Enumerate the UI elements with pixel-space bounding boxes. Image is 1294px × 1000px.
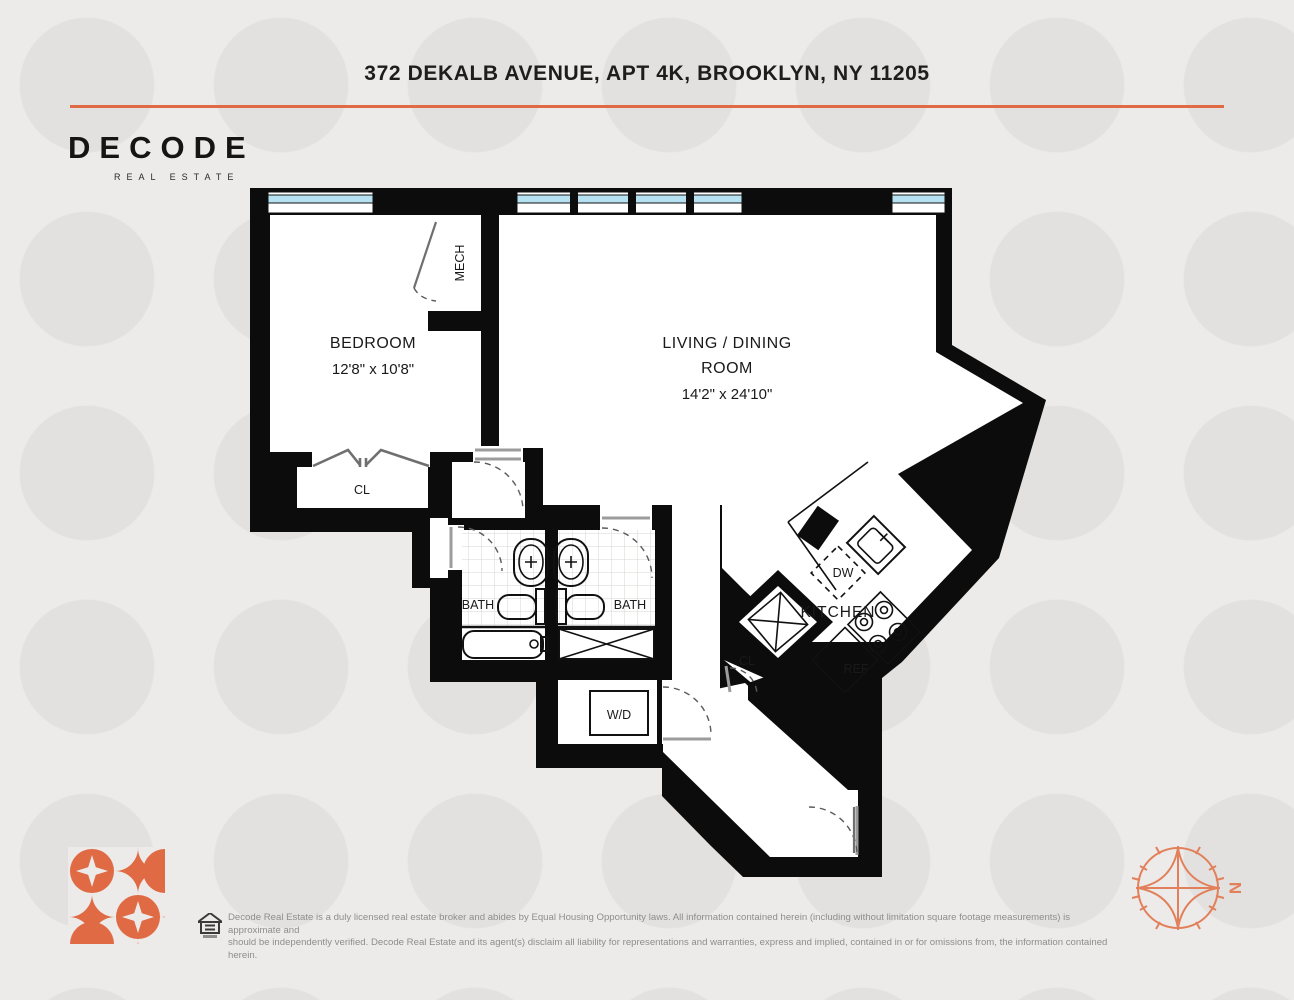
refrigerator-label: REF bbox=[844, 662, 869, 676]
mech-label: MECH bbox=[453, 245, 467, 282]
floorplan-svg: BEDROOM 12'8" x 10'8" LIVING / DINING RO… bbox=[0, 0, 1294, 1000]
wd-hall-floor bbox=[662, 680, 712, 744]
north-label: N bbox=[1226, 882, 1245, 894]
compass: N bbox=[1132, 846, 1245, 930]
hall-vestibule-floor bbox=[452, 462, 525, 518]
disclaimer-line2: should be independently verified. Decode… bbox=[228, 937, 1118, 962]
bedroom-label: BEDROOM bbox=[330, 335, 416, 352]
living-label-line1: LIVING / DINING bbox=[662, 335, 791, 352]
kitchen-label: KITCHEN bbox=[800, 604, 875, 621]
bedroom-closet-label: CL bbox=[354, 483, 370, 497]
floorplan-page: 372 DEKALB AVENUE, APT 4K, BROOKLYN, NY … bbox=[0, 0, 1294, 1000]
window-living-band bbox=[517, 190, 742, 215]
window-corner bbox=[892, 192, 945, 213]
bedroom-floor bbox=[270, 215, 481, 452]
wd-label: W/D bbox=[607, 708, 631, 722]
bedroom-dimensions: 12'8" x 10'8" bbox=[332, 361, 414, 378]
bath-right-label: BATH bbox=[614, 598, 646, 612]
equal-housing-icon bbox=[198, 913, 222, 939]
living-label-line2: ROOM bbox=[701, 360, 753, 377]
footer-logo bbox=[68, 847, 165, 944]
corridor-floor bbox=[672, 505, 720, 690]
disclaimer: Decode Real Estate is a duly licensed re… bbox=[228, 912, 1118, 962]
living-dimensions: 14'2" x 24'10" bbox=[682, 386, 773, 403]
bath-left-label: BATH bbox=[462, 598, 494, 612]
window-bedroom bbox=[268, 192, 373, 213]
dishwasher-label: DW bbox=[833, 566, 854, 580]
disclaimer-line1: Decode Real Estate is a duly licensed re… bbox=[228, 912, 1118, 937]
hall-closet-label: CL bbox=[739, 654, 755, 668]
